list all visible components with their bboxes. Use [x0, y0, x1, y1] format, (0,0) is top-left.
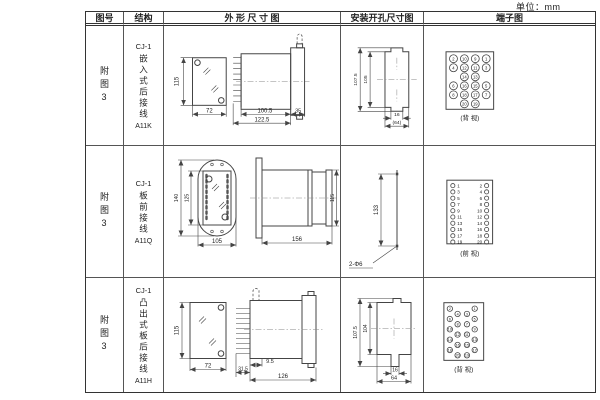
svg-text:7: 7	[485, 92, 488, 97]
row3-outline-drawing: 115 72 9.5 31.5	[164, 278, 340, 392]
row1-dim-flange: 35	[295, 108, 301, 114]
row2-dim-outer-height: 140	[174, 194, 180, 203]
svg-text:4: 4	[457, 312, 459, 316]
row1-terminal-diagram: 2109141211314136161558181772019(背 视)	[424, 26, 595, 145]
svg-text:(背 视): (背 视)	[460, 113, 479, 122]
row3-front-view: 115 72	[175, 303, 227, 372]
row3-dim-opening-width: 64	[391, 376, 397, 382]
col-header-terminal-label: 端子图	[496, 12, 523, 24]
row1-structure-cell: CJ-1 嵌入式后接线 A11K	[124, 26, 164, 146]
svg-text:18: 18	[448, 348, 452, 352]
row3-side-view: 9.5 31.5 126	[236, 289, 324, 382]
row1-dim-slot-width: 16	[394, 112, 400, 118]
svg-text:(背 视): (背 视)	[454, 364, 473, 373]
row3-dim-outer-height: 107.5	[353, 326, 359, 339]
row3-dim-depth: 126	[278, 374, 289, 380]
svg-text:8: 8	[480, 202, 483, 207]
svg-text:13: 13	[457, 221, 462, 226]
row1-model-prefix: CJ-1	[136, 42, 152, 51]
svg-text:10: 10	[448, 328, 452, 332]
svg-text:3: 3	[466, 312, 468, 316]
row1-fig-no: 附图3	[98, 66, 111, 106]
row2-fig-no-cell: 附图3	[86, 146, 124, 278]
svg-text:4: 4	[452, 65, 455, 70]
svg-text:19: 19	[457, 240, 462, 245]
svg-text:5: 5	[474, 317, 476, 321]
svg-text:2: 2	[480, 183, 483, 188]
row3-mounting-drawing: 107.5 104 16 64	[341, 278, 423, 392]
svg-text:12: 12	[462, 65, 467, 70]
col-header-fig-no: 图号	[86, 12, 124, 26]
svg-text:14: 14	[477, 221, 482, 226]
col-header-structure: 结构	[124, 12, 164, 26]
svg-text:13: 13	[473, 338, 477, 342]
row3-dim-width: 72	[205, 364, 212, 370]
row3-cutout-view: 107.5 104 16 64	[353, 299, 417, 384]
svg-text:14: 14	[448, 338, 452, 342]
row2-holes-view: 133 2-Φ6	[349, 170, 398, 268]
svg-text:10: 10	[462, 56, 467, 61]
svg-text:1: 1	[485, 56, 488, 61]
col-header-terminal: 端子图	[424, 12, 595, 26]
svg-text:16: 16	[477, 227, 482, 232]
row2-model-prefix: CJ-1	[136, 179, 152, 188]
row3-dim-inner-height: 104	[363, 324, 369, 333]
row1-structure-label: 嵌入式后接线	[138, 54, 150, 120]
svg-text:18: 18	[462, 92, 467, 97]
svg-text:3: 3	[457, 190, 460, 195]
svg-text:20: 20	[456, 354, 460, 358]
row2-fig-no: 附图3	[98, 192, 111, 232]
row2-dim-width: 105	[212, 239, 223, 245]
svg-text:15: 15	[465, 343, 469, 347]
svg-text:11: 11	[473, 65, 478, 70]
row2-front-view: 140 125 105	[174, 160, 236, 247]
row2-structure-cell: CJ-1 板前接线 A11Q	[124, 146, 164, 278]
row1-front-view: 115 72	[175, 58, 227, 117]
svg-text:6: 6	[452, 83, 455, 88]
svg-text:11: 11	[465, 333, 469, 337]
svg-text:12: 12	[477, 215, 482, 220]
svg-text:1: 1	[474, 307, 476, 311]
row1-mounting-drawing: 107.5 105 16 (64)	[341, 26, 423, 145]
row2-mounting-cell: 133 2-Φ6	[341, 146, 424, 278]
row2-mounting-drawing: 133 2-Φ6	[341, 146, 423, 277]
spec-table: 图号 结构 外 形 尺 寸 图 安装开孔尺寸图 端子图 附图3 CJ-1 嵌入式…	[85, 11, 596, 393]
row1-side-view: 100.5 35 122.5	[233, 34, 309, 125]
row1-dim-opening-width: (64)	[392, 120, 401, 126]
col-header-mounting-label: 安装开孔尺寸图	[350, 12, 413, 24]
row2-dim-height: 115	[330, 194, 336, 202]
svg-text:5: 5	[457, 196, 460, 201]
svg-text:8: 8	[452, 92, 455, 97]
svg-text:6: 6	[449, 317, 451, 321]
svg-text:7: 7	[466, 323, 468, 327]
svg-text:2: 2	[452, 56, 455, 61]
svg-text:(前 视): (前 视)	[460, 249, 479, 258]
col-header-fig-no-label: 图号	[95, 12, 113, 24]
row2-outline-drawing: 140 125 105 156 115	[164, 146, 340, 277]
svg-text:1: 1	[457, 183, 460, 188]
col-header-outline: 外 形 尺 寸 图	[164, 12, 341, 26]
row3-structure-cell: CJ-1 凸出式板后接线 A11H	[124, 278, 164, 392]
row1-outline-drawing: 115 72 100.5 35	[164, 26, 340, 145]
document-page: 单位：mm 图号 结构 外 形 尺 寸 图 安装开孔尺寸图 端子图 附图3 CJ…	[0, 0, 600, 400]
row1-dim-inner-height: 105	[363, 75, 369, 83]
svg-text:9: 9	[474, 56, 477, 61]
svg-text:13: 13	[473, 74, 478, 79]
svg-text:8: 8	[457, 323, 459, 327]
svg-text:17: 17	[473, 92, 478, 97]
svg-text:4: 4	[480, 190, 483, 195]
row3-terminal-diagram: 2468101214161820135791113151719(背 视)	[424, 278, 595, 392]
svg-text:20: 20	[477, 240, 482, 245]
row1-cutout-view: 107.5 105 16 (64)	[353, 48, 417, 128]
row1-fig-no-cell: 附图3	[86, 26, 124, 146]
svg-text:17: 17	[457, 233, 462, 238]
svg-text:19: 19	[473, 101, 478, 106]
svg-text:20: 20	[462, 101, 467, 106]
svg-text:15: 15	[473, 83, 478, 88]
row1-terminal-cell: 2109141211314136161558181772019(背 视)	[424, 26, 595, 146]
row1-dim-depth: 100.5	[257, 108, 273, 114]
row2-model-code: A11Q	[135, 238, 152, 245]
col-header-mounting: 安装开孔尺寸图	[341, 12, 424, 26]
row2-outline-cell: 140 125 105 156 115	[164, 146, 341, 278]
row1-dim-width: 72	[206, 108, 213, 114]
row1-dim-height: 115	[175, 76, 181, 86]
svg-text:19: 19	[465, 354, 469, 358]
row3-model-prefix: CJ-1	[136, 286, 152, 295]
row2-dim-depth: 156	[292, 237, 303, 243]
svg-text:11: 11	[457, 215, 462, 220]
row2-structure-label: 板前接线	[138, 191, 150, 235]
row3-outline-cell: 115 72 9.5 31.5	[164, 278, 341, 392]
row1-outline-cell: 115 72 100.5 35	[164, 26, 341, 146]
row1-dim-total-depth: 122.5	[254, 118, 270, 124]
svg-text:7: 7	[457, 202, 460, 207]
svg-text:10: 10	[477, 208, 482, 213]
row3-model-code: A11H	[135, 378, 152, 385]
row1-dim-outer-height: 107.5	[353, 73, 359, 86]
svg-text:3: 3	[485, 65, 488, 70]
svg-text:6: 6	[480, 196, 483, 201]
row2-terminal-cell: 1234567891011121314151617181920(前 视)	[424, 146, 595, 278]
svg-text:18: 18	[477, 233, 482, 238]
row3-dim-pin-depth: 31.5	[238, 367, 248, 373]
svg-text:17: 17	[473, 348, 477, 352]
row3-dim-gap: 9.5	[266, 359, 274, 365]
row3-dim-slot-width: 16	[392, 368, 398, 374]
col-header-structure-label: 结构	[134, 12, 152, 24]
row1-model-code: A11K	[135, 123, 152, 130]
row2-terminal-diagram: 1234567891011121314151617181920(前 视)	[424, 146, 595, 277]
row3-fig-no: 附图3	[98, 315, 111, 355]
row3-dim-height: 115	[175, 325, 181, 335]
row3-structure-label: 凸出式板后接线	[138, 298, 150, 375]
svg-text:2: 2	[449, 307, 451, 311]
col-header-outline-label: 外 形 尺 寸 图	[224, 12, 279, 24]
svg-text:16: 16	[456, 343, 460, 347]
svg-text:9: 9	[457, 208, 460, 213]
svg-text:15: 15	[457, 227, 462, 232]
svg-text:14: 14	[462, 74, 467, 79]
row2-side-view: 156 115	[250, 158, 339, 245]
row2-dim-inner-height: 125	[185, 194, 191, 203]
svg-text:16: 16	[462, 83, 467, 88]
row1-mounting-cell: 107.5 105 16 (64)	[341, 26, 424, 146]
row2-dim-holes: 2-Φ6	[349, 262, 363, 268]
row3-fig-no-cell: 附图3	[86, 278, 124, 392]
row2-dim-hole-spacing: 133	[374, 204, 380, 215]
row3-terminal-cell: 2468101214161820135791113151719(背 视)	[424, 278, 595, 392]
svg-text:12: 12	[456, 333, 460, 337]
svg-text:9: 9	[474, 328, 476, 332]
row3-mounting-cell: 107.5 104 16 64	[341, 278, 424, 392]
svg-text:5: 5	[485, 83, 488, 88]
